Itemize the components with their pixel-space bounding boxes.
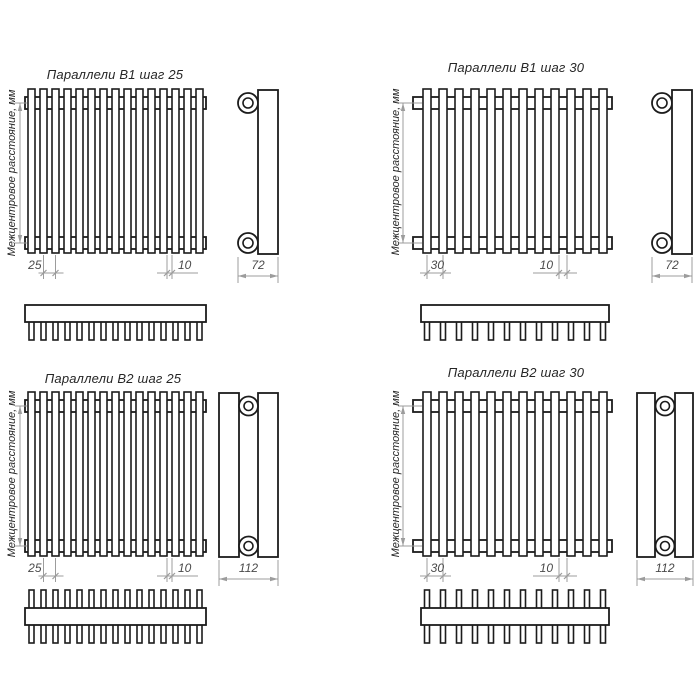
pitch-dimension-label: 25 (27, 561, 42, 575)
pitch-dimension-label: 30 (431, 561, 445, 575)
variant-view-b2-step-25: 2510112 (15, 392, 278, 643)
depth-dimension-label: 112 (239, 561, 258, 575)
top-view-comb (25, 590, 206, 643)
gap-dimension-label: 10 (178, 561, 192, 575)
axis-label-b1-25: Межцентровое расстояние, мм (6, 89, 20, 257)
radiator-projection-drawing: 25107230107225101123010112 (0, 0, 700, 700)
pitch-dimension-label: 25 (27, 258, 42, 272)
gap-dimension-label: 10 (540, 258, 554, 272)
top-view-comb (25, 305, 206, 340)
front-view (25, 392, 206, 556)
top-view-comb (421, 305, 609, 340)
front-view (413, 89, 612, 253)
variant-title-b1-25: Параллели В1 шаг 25 (5, 67, 225, 82)
variant-view-b1-step-25: 251072 (15, 89, 278, 340)
side-view (637, 393, 693, 557)
gap-dimension-label: 10 (178, 258, 192, 272)
side-view (238, 90, 278, 254)
variant-view-b2-step-30: 3010112 (398, 392, 693, 643)
variant-title-b1-30: Параллели В1 шаг 30 (406, 60, 626, 75)
variant-title-b2-25: Параллели В2 шаг 25 (3, 371, 223, 386)
axis-label-b1-30: Межцентровое расстояние, мм (390, 88, 404, 256)
top-view-comb (421, 590, 609, 643)
gap-dimension-label: 10 (540, 561, 554, 575)
axis-label-b2-25: Межцентровое расстояние, мм (6, 390, 20, 558)
variant-title-b2-30: Параллели В2 шаг 30 (406, 365, 626, 380)
depth-dimension-label: 112 (655, 561, 674, 575)
axis-label-b2-30: Межцентровое расстояние, мм (390, 390, 404, 558)
side-view (219, 393, 278, 557)
pitch-dimension-label: 30 (431, 258, 445, 272)
front-view (413, 392, 612, 556)
variant-view-b1-step-30: 301072 (398, 89, 692, 340)
front-view (25, 89, 206, 253)
depth-dimension-label: 72 (665, 258, 679, 272)
depth-dimension-label: 72 (251, 258, 265, 272)
side-view (652, 90, 692, 254)
technical-drawing-sheet: 25107230107225101123010112 Параллели В1 … (0, 0, 700, 700)
